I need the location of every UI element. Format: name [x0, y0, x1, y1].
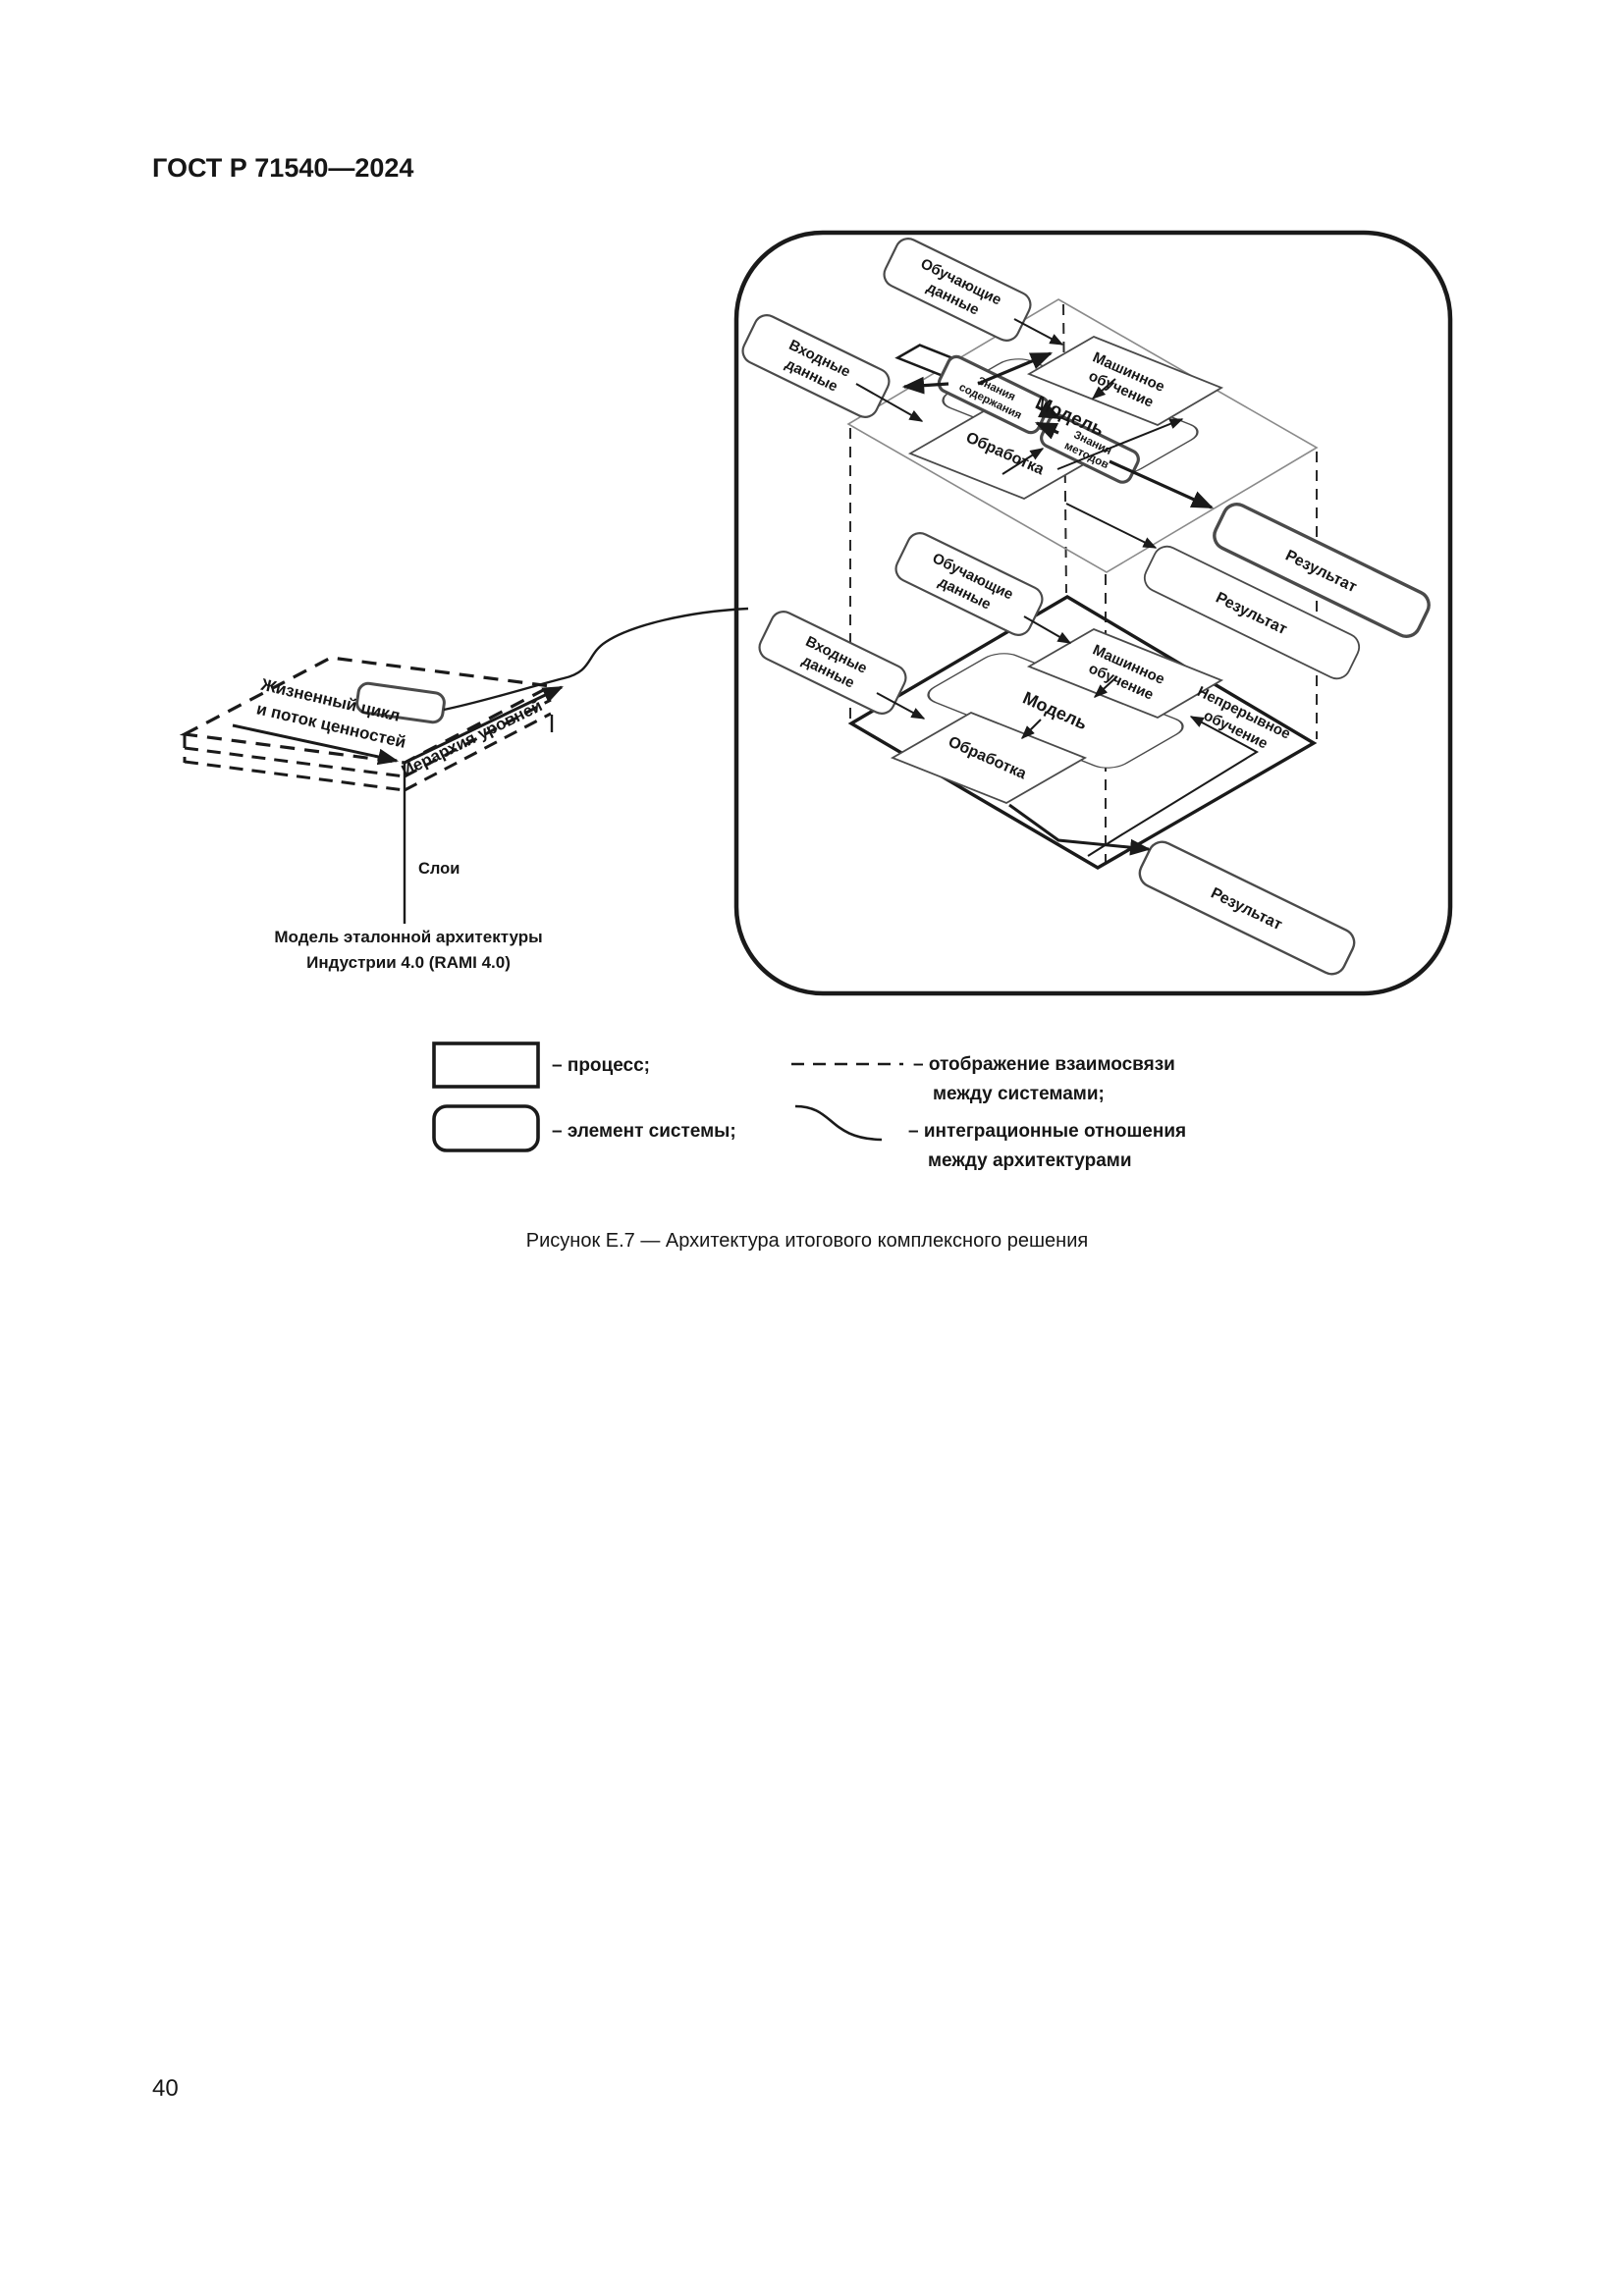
- legend-process-label: – процесс;: [552, 1055, 650, 1076]
- legend-mapping-label-line1: – отображение взаимосвязи: [913, 1054, 1175, 1075]
- legend-integration-label-line2: между архитектурами: [928, 1150, 1132, 1171]
- legend-element-symbol: [434, 1106, 538, 1150]
- upper-system-plane: Обучающиеданные Входныеданные Машинноеоб…: [738, 235, 1434, 683]
- continuous-learning-label: Непрерывноеобучение: [1186, 683, 1293, 760]
- legend-process-symbol: [434, 1043, 538, 1087]
- figure-e7-canvas: ГОСТ Р 71540—2024 Жизненный цикл и поток…: [0, 0, 1624, 2296]
- legend-element-label: – элемент системы;: [552, 1121, 736, 1142]
- training-data-box-lower: [892, 529, 1047, 639]
- legend-mapping-label-line2: между системами;: [933, 1084, 1105, 1104]
- legend-integration-symbol: [795, 1106, 882, 1140]
- rami-model: Жизненный цикл и поток ценностей Иерархи…: [185, 609, 748, 972]
- rami-caption-line1: Модель эталонной архитектуры: [274, 928, 542, 946]
- page-header: ГОСТ Р 71540—2024: [152, 153, 413, 183]
- training-data-box-upper: [880, 235, 1035, 345]
- legend-integration-label-line1: – интеграционные отношения: [908, 1121, 1186, 1142]
- arrow-to-result-bold: [1110, 461, 1212, 507]
- figure-legend: – процесс; – элемент системы; – отображе…: [434, 1043, 1186, 1171]
- rami-caption-line2: Индустрии 4.0 (RAMI 4.0): [306, 953, 511, 972]
- arrow-to-result-thin: [1066, 504, 1156, 548]
- input-data-box-lower: [755, 608, 910, 718]
- input-data-box-upper: [738, 311, 893, 421]
- document-page: ГОСТ Р 71540—2024 Жизненный цикл и поток…: [0, 0, 1624, 2296]
- arrow-training-to-ml-upper: [1014, 319, 1062, 345]
- rami-layers-label: Слои: [418, 860, 460, 878]
- figure-caption: Рисунок Е.7 — Архитектура итогового комп…: [526, 1230, 1088, 1252]
- page-number: 40: [152, 2075, 179, 2102]
- integration-relation-curve: [444, 609, 748, 710]
- arrow-training-to-ml-lower: [1024, 616, 1070, 643]
